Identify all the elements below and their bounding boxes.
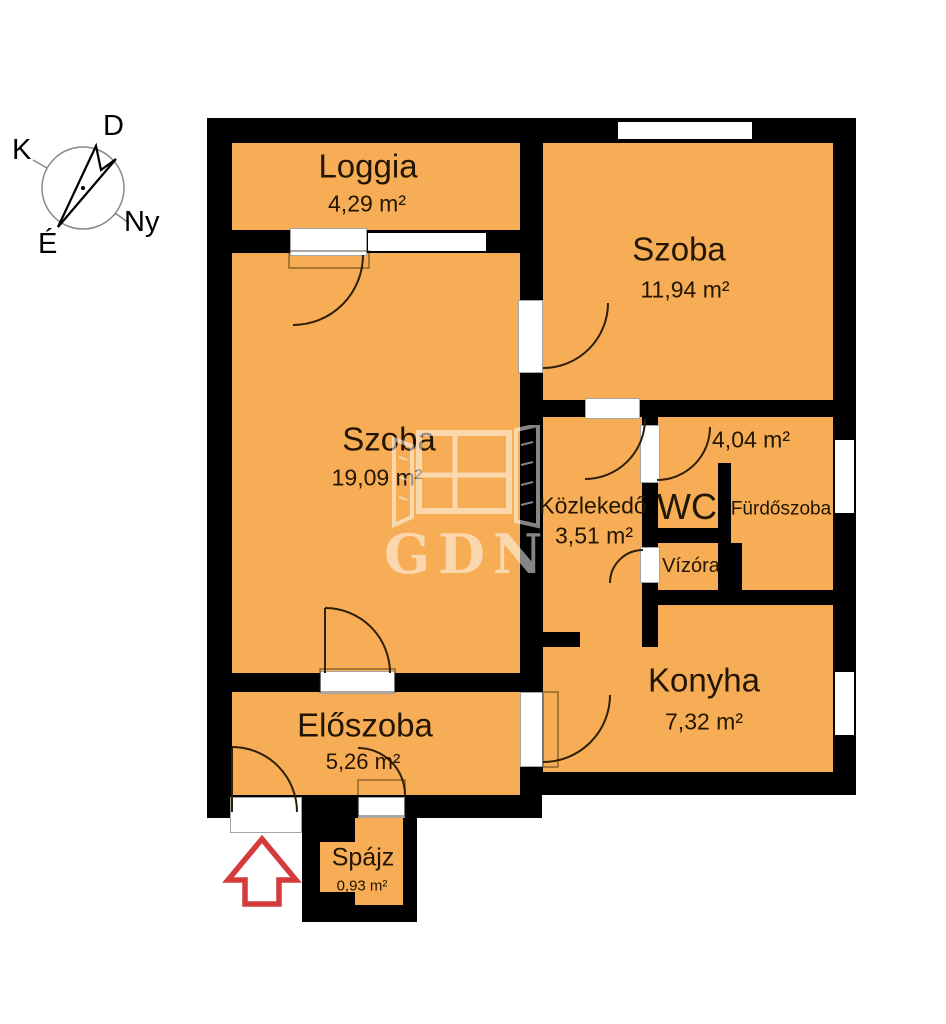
label-eloszoba: Előszoba	[297, 709, 433, 742]
label-kozlekedo-area: 3,51 m²	[555, 525, 633, 548]
label-vizora: Vízóra	[662, 556, 720, 576]
window-furdoszoba	[835, 440, 854, 513]
compass-needle	[58, 146, 116, 227]
door-szoba-eloszoba	[320, 671, 395, 694]
label-konyha-area: 7,32 m²	[665, 711, 743, 734]
door-wc	[640, 425, 660, 483]
door-entrance	[230, 797, 302, 833]
compass-label-west: Ny	[124, 208, 159, 237]
compass-label-east: K	[12, 136, 31, 165]
window-loggia	[368, 233, 486, 251]
door-eloszoba-konyha	[520, 692, 543, 767]
floor-plan: Loggia 4,29 m² Szoba 19,09 m² Szoba 11,9…	[0, 0, 946, 1024]
label-eloszoba-area: 5,26 m²	[326, 751, 401, 773]
label-kozlekedo: Közlekedő	[539, 495, 646, 518]
compass-icon	[6, 106, 186, 276]
compass-label-north: É	[38, 230, 57, 259]
label-furdoszoba-area: 4,04 m²	[712, 429, 790, 452]
label-szoba-kis-area: 11,94 m²	[640, 279, 729, 302]
door-kozlekedo	[585, 398, 640, 419]
label-spajz: Spájz	[332, 846, 395, 871]
label-wc: WC	[657, 489, 717, 525]
label-loggia-area: 4,29 m²	[328, 193, 406, 216]
label-furdoszoba: Fürdőszoba	[731, 500, 831, 519]
label-spajz-area: 0,93 m²	[337, 879, 388, 894]
wall-vizora-top	[642, 528, 727, 543]
door-loggia	[290, 228, 367, 256]
window-top	[617, 121, 753, 140]
label-szoba-nagy: Szoba	[342, 423, 436, 456]
label-konyha: Konyha	[648, 664, 760, 697]
door-spajz	[358, 797, 405, 818]
room-szoba-nagy	[232, 253, 520, 673]
label-szoba-kis: Szoba	[632, 233, 726, 266]
label-loggia: Loggia	[318, 150, 417, 183]
room-szoba-kis	[543, 141, 833, 400]
compass-label-south: D	[103, 112, 124, 141]
wall-outer-left	[207, 118, 232, 818]
wall-furdo-konyha	[655, 590, 833, 605]
wall-kozlekedo-stub	[542, 632, 580, 647]
window-konyha	[835, 672, 854, 735]
entrance-arrow-icon	[220, 834, 306, 910]
door-vizora	[640, 547, 660, 583]
door-szoba-szoba	[518, 300, 543, 373]
label-szoba-nagy-area: 19,09 m²	[332, 467, 423, 490]
room-konyha-upper	[658, 605, 833, 647]
wall-konyha-bottom	[542, 772, 856, 795]
